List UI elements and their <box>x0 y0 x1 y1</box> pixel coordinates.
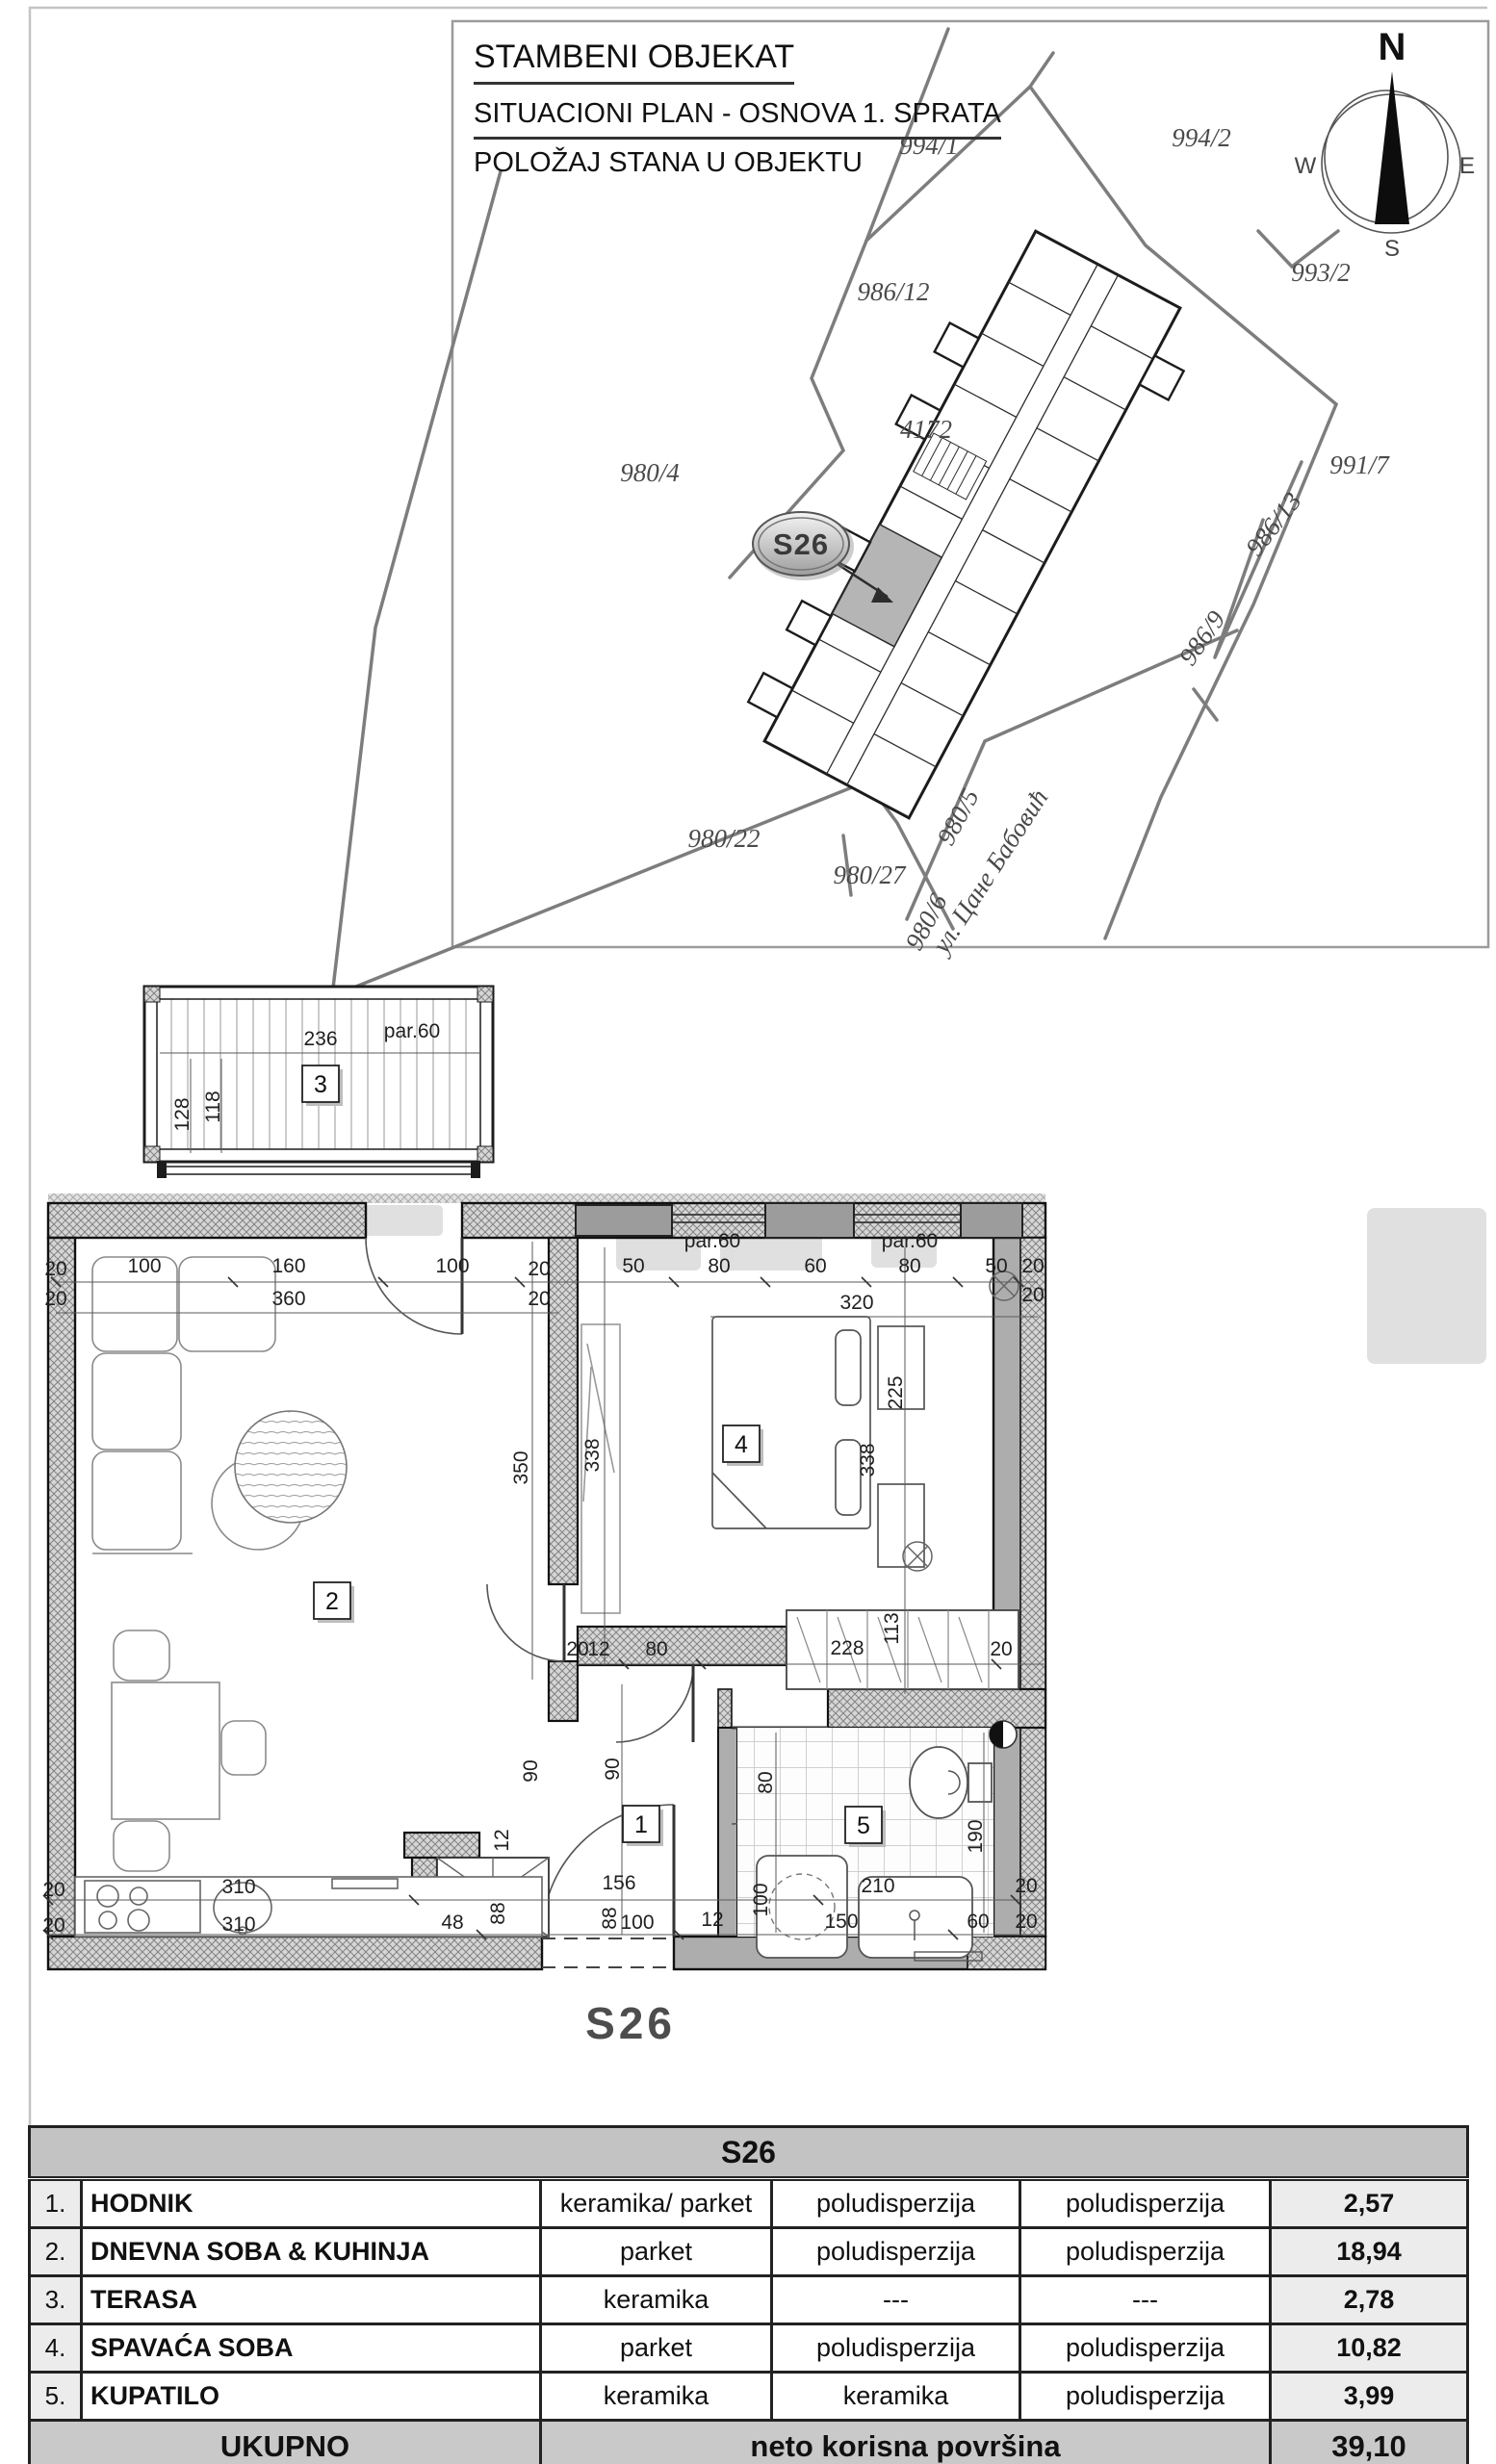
dimension-label: 20 <box>44 1288 66 1310</box>
cell-ceiling-finish: poludisperzija <box>1020 2179 1271 2228</box>
dimension-label: 80 <box>755 1771 777 1793</box>
dimension-label: 228 <box>830 1637 864 1659</box>
dimension-label: 80 <box>898 1255 920 1277</box>
cell-wall-finish: keramika <box>772 2373 1020 2421</box>
dimension-label: 88 <box>487 1902 509 1924</box>
dimension-label: 150 <box>824 1911 858 1933</box>
page: STAMBENI OBJEKAT SITUACIONI PLAN - OSNOV… <box>0 0 1496 2464</box>
dimension-label: 236 <box>303 1028 337 1050</box>
cell-row-number: 4. <box>30 2324 82 2373</box>
dimension-label: 320 <box>839 1292 873 1314</box>
cell-ceiling-finish: poludisperzija <box>1020 2324 1271 2373</box>
dimension-label: 88 <box>599 1907 621 1929</box>
dimension-label: 80 <box>645 1638 667 1660</box>
floor-plan: 2010016010020508060805020203602032020236… <box>42 987 1486 2048</box>
dimension-label: 350 <box>510 1450 532 1484</box>
cell-floor-finish: parket <box>541 2324 772 2373</box>
cell-area-value: 2,57 <box>1271 2179 1468 2228</box>
cell-room-name: TERASA <box>82 2276 541 2324</box>
cell-floor-finish: keramika/ parket <box>541 2179 772 2228</box>
parcel-label: 991/7 <box>1329 450 1390 479</box>
cell-floor-finish: keramika <box>541 2373 772 2421</box>
cell-area-value: 2,78 <box>1271 2276 1468 2324</box>
parcel-label: 980/22 <box>687 824 760 853</box>
dimension-label: 20 <box>990 1638 1012 1660</box>
dimension-label: 20 <box>1021 1284 1044 1306</box>
dimension-label: 48 <box>441 1912 463 1934</box>
room-number-label: 4 <box>735 1431 748 1458</box>
parapet-label: par.60 <box>882 1230 938 1252</box>
dimension-label: 12 <box>701 1909 723 1931</box>
dimension-label: 60 <box>804 1255 826 1277</box>
parcel-label: 986/12 <box>857 277 929 306</box>
table-header-unit: S26 <box>30 2127 1468 2179</box>
dimension-label: 50 <box>622 1255 644 1277</box>
cell-wall-finish: poludisperzija <box>772 2179 1020 2228</box>
architectural-drawing: S26 N S W E 994/1994/2993/2986/12980/441… <box>0 0 1496 2464</box>
room-number-label: 1 <box>634 1811 648 1838</box>
cell-area-value: 10,82 <box>1271 2324 1468 2373</box>
total-description: neto korisna površina <box>541 2421 1271 2464</box>
parcel-label: 980/4 <box>620 458 680 487</box>
dimension-label: 90 <box>520 1759 542 1782</box>
title-block: STAMBENI OBJEKAT SITUACIONI PLAN - OSNOV… <box>474 38 1001 179</box>
compass-south-label: S <box>1384 236 1400 262</box>
unit-badge-label: S26 <box>773 527 829 561</box>
dimension-label: 310 <box>221 1876 255 1898</box>
chair <box>114 1821 169 1871</box>
parcel-label: 980/27 <box>833 860 907 889</box>
cell-room-name: SPAVAĆA SOBA <box>82 2324 541 2373</box>
dimension-label: 100 <box>127 1255 161 1277</box>
room-number-label: 5 <box>857 1812 870 1839</box>
table-row: 3.TERASAkeramika------2,78 <box>30 2276 1468 2324</box>
cell-ceiling-finish: poludisperzija <box>1020 2228 1271 2276</box>
cell-wall-finish: --- <box>772 2276 1020 2324</box>
dimension-label: 100 <box>750 1883 772 1916</box>
table-row: 2.DNEVNA SOBA & KUHINJAparketpoludisperz… <box>30 2228 1468 2276</box>
table-row: 5.KUPATILOkeramikakeramikapoludisperzija… <box>30 2373 1468 2421</box>
dimension-label: 156 <box>602 1872 635 1894</box>
table-total-row: UKUPNOneto korisna površina39,10 <box>30 2421 1468 2464</box>
dimension-label: 338 <box>581 1438 604 1472</box>
toilet <box>910 1747 967 1818</box>
dimension-label: 20 <box>42 1914 64 1937</box>
dimension-label: 118 <box>202 1091 224 1122</box>
dimension-label: 90 <box>602 1758 624 1780</box>
cell-floor-finish: keramika <box>541 2276 772 2324</box>
finish-table: S26 1.HODNIKkeramika/ parketpoludisperzi… <box>28 2125 1469 2464</box>
dining-table <box>112 1682 219 1819</box>
dimension-label: 128 <box>171 1097 193 1131</box>
dimension-label: 20 <box>1021 1255 1044 1277</box>
nightstand <box>878 1484 924 1567</box>
cell-row-number: 3. <box>30 2276 82 2324</box>
dimension-label: 100 <box>435 1255 469 1277</box>
cell-room-name: DNEVNA SOBA & KUHINJA <box>82 2228 541 2276</box>
cell-row-number: 1. <box>30 2179 82 2228</box>
compass-west-label: W <box>1295 153 1317 179</box>
dimension-label: 20 <box>566 1638 588 1660</box>
dimension-label: 20 <box>42 1879 64 1901</box>
parcel-label: 4172 <box>900 415 952 444</box>
table-row: 1.HODNIKkeramika/ parketpoludisperzijapo… <box>30 2179 1468 2228</box>
dimension-label: 310 <box>221 1913 255 1936</box>
floor-plan-caption: S26 <box>585 1998 676 2048</box>
dimension-label: 190 <box>965 1819 987 1853</box>
dimension-label: 80 <box>708 1255 730 1277</box>
cell-row-number: 2. <box>30 2228 82 2276</box>
cell-wall-finish: poludisperzija <box>772 2324 1020 2373</box>
plant <box>235 1411 347 1523</box>
page-title: STAMBENI OBJEKAT <box>474 38 794 85</box>
dimension-label: 12 <box>587 1638 609 1660</box>
dimension-label: 225 <box>885 1375 907 1409</box>
parapet-label: par.60 <box>384 1020 440 1042</box>
cell-ceiling-finish: poludisperzija <box>1020 2373 1271 2421</box>
page-subtitle-1: SITUACIONI PLAN - OSNOVA 1. SPRATA <box>474 98 1001 140</box>
table-header-row: S26 <box>30 2127 1468 2179</box>
dimension-label: 20 <box>44 1258 66 1280</box>
cell-row-number: 5. <box>30 2373 82 2421</box>
chair <box>114 1630 169 1681</box>
dimension-label: 50 <box>985 1255 1007 1277</box>
dimension-label: 338 <box>857 1443 879 1476</box>
dimension-label: 12 <box>491 1829 513 1851</box>
dimension-label: 360 <box>271 1288 305 1310</box>
dimension-label: 20 <box>528 1258 550 1280</box>
dimension-label: 160 <box>271 1255 305 1277</box>
total-value: 39,10 <box>1271 2421 1468 2464</box>
dimension-label: 210 <box>861 1875 894 1897</box>
cell-ceiling-finish: --- <box>1020 2276 1271 2324</box>
parapet-label: par.60 <box>684 1230 740 1252</box>
dimension-label: 100 <box>620 1912 654 1934</box>
dimension-label: 20 <box>1015 1875 1037 1897</box>
compass-north-label: N <box>1379 26 1406 68</box>
kitchen <box>75 1877 542 1937</box>
room-number-label: 2 <box>325 1588 339 1615</box>
dimension-label: 60 <box>967 1911 989 1933</box>
compass-east-label: E <box>1459 153 1475 179</box>
cell-room-name: KUPATILO <box>82 2373 541 2421</box>
chair <box>221 1721 266 1775</box>
dimension-label: 20 <box>1015 1911 1037 1933</box>
cell-floor-finish: parket <box>541 2228 772 2276</box>
room-number-label: 3 <box>314 1071 327 1098</box>
total-label: UKUPNO <box>30 2421 541 2464</box>
cell-area-value: 3,99 <box>1271 2373 1468 2421</box>
dimension-label: 113 <box>881 1612 903 1644</box>
table-row: 4.SPAVAĆA SOBAparketpoludisperzijapoludi… <box>30 2324 1468 2373</box>
dimension-label: 20 <box>528 1288 550 1310</box>
cell-wall-finish: poludisperzija <box>772 2228 1020 2276</box>
page-subtitle-2: POLOŽAJ STANA U OBJEKTU <box>474 147 863 178</box>
cell-area-value: 18,94 <box>1271 2228 1468 2276</box>
cell-room-name: HODNIK <box>82 2179 541 2228</box>
parcel-label: 993/2 <box>1291 258 1351 287</box>
parcel-label: 994/2 <box>1172 123 1231 152</box>
